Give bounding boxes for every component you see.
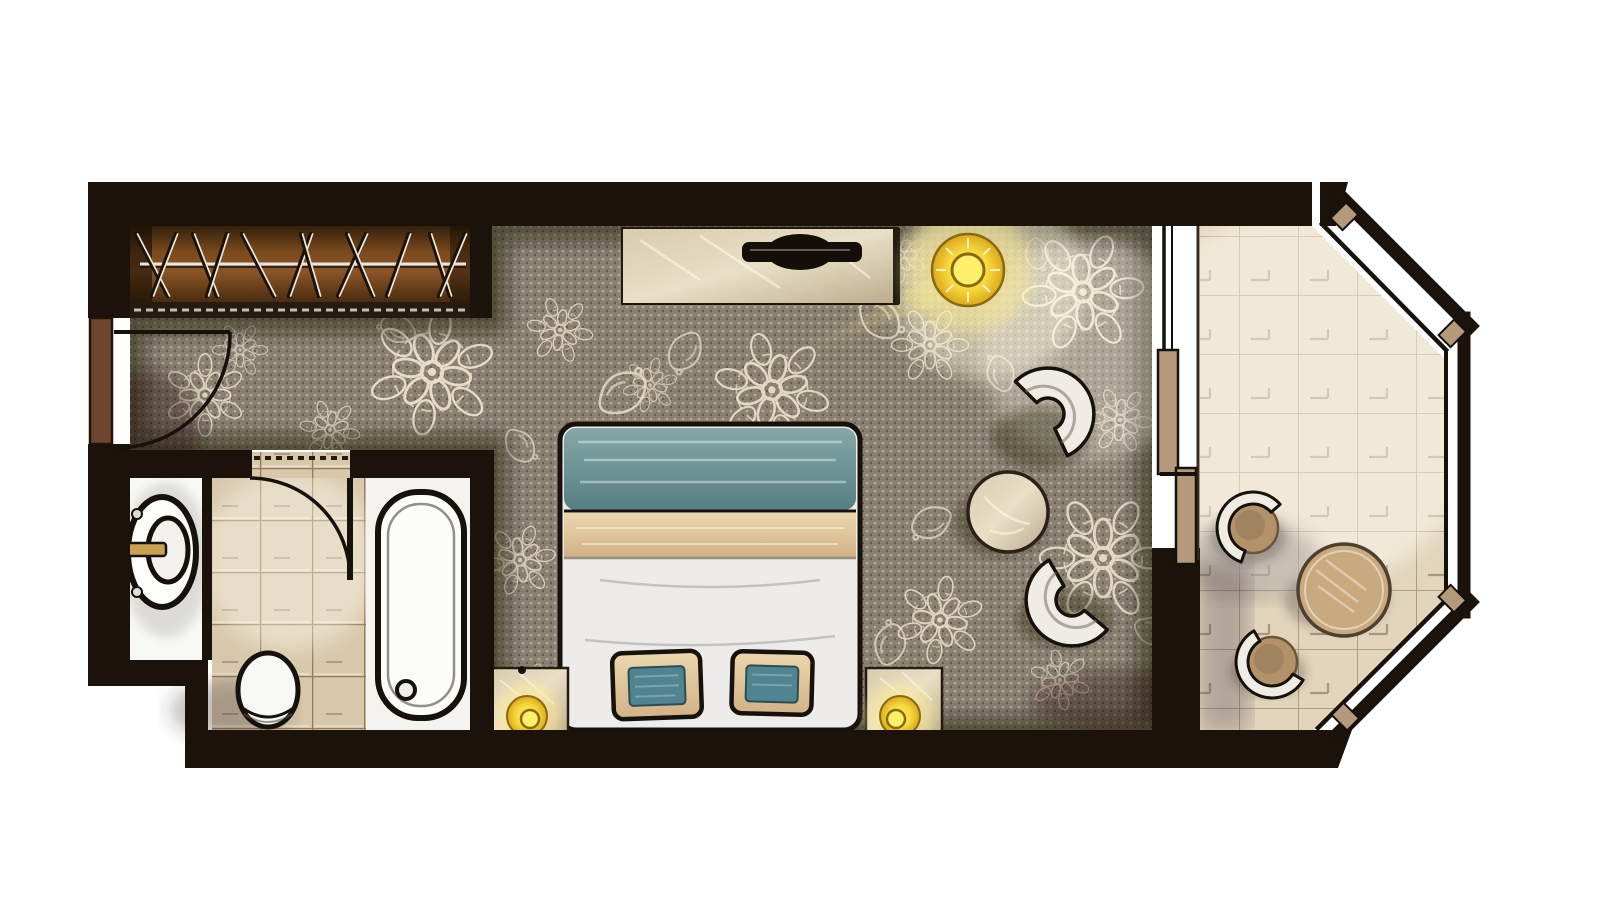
wall-bathroom-divider	[470, 450, 494, 768]
wall-bathroom-top-left	[130, 450, 252, 478]
decor-pillow-right	[731, 651, 813, 715]
wall-bathroom-top-right	[350, 450, 472, 478]
bathroom	[122, 452, 472, 740]
tub-drain	[397, 681, 415, 699]
closet	[130, 226, 492, 318]
wall-partition-lower	[1152, 548, 1200, 768]
sliding-door-panel-b	[1176, 468, 1196, 564]
toilet	[238, 653, 298, 727]
wall-left-upper	[88, 182, 130, 318]
double-bed	[560, 424, 860, 730]
sliding-door-panel-a	[1158, 350, 1178, 474]
floor-plan-drawing	[0, 0, 1600, 900]
bed-blanket-fold	[564, 513, 856, 557]
faucet	[128, 543, 166, 556]
wall-left-lower	[88, 444, 130, 660]
bathroom-door-threshold	[252, 452, 350, 478]
bed-teal-runner	[564, 428, 856, 510]
bathtub	[366, 478, 472, 732]
partition-glass	[1156, 226, 1196, 352]
faucet-knob	[132, 509, 142, 519]
decor-pillow-left	[612, 650, 702, 719]
tv-console	[622, 228, 900, 304]
washbasin-counter	[122, 478, 210, 660]
faucet-knob	[132, 587, 142, 597]
balcony-partition	[1156, 226, 1198, 564]
wall-basin-divider	[202, 478, 212, 660]
entry-door-leaf	[90, 318, 112, 444]
nightstand-knob	[518, 666, 526, 674]
wall-closet-divider	[470, 182, 492, 318]
floor-plan-canvas	[0, 0, 1600, 900]
wall-top	[88, 182, 1312, 226]
